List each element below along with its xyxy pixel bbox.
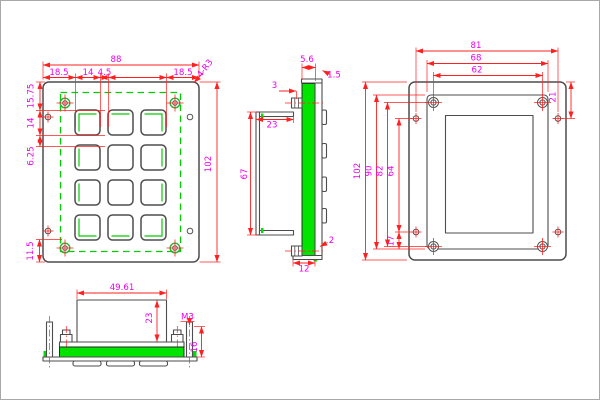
dim-cover-height: 67 xyxy=(240,169,250,180)
bottom-view: 49.61 23 M3 16 xyxy=(43,283,205,369)
dim-key-gap: 4.5 xyxy=(98,68,112,78)
key-bump xyxy=(322,110,327,125)
dim-margin-right: 18.5 xyxy=(173,68,192,78)
cover-opening xyxy=(446,116,534,234)
dim-screw-offset: 3 xyxy=(272,81,277,91)
dim-key-width: 14 xyxy=(83,68,94,78)
dim-corner-radius: 4-R3 xyxy=(195,58,215,80)
gasket-mark xyxy=(261,228,264,233)
gasket-mark xyxy=(261,114,264,119)
dim-hole-offset: 17 xyxy=(387,236,397,247)
dim-stud-length: 16 xyxy=(190,342,200,353)
dim-stack-thickness: 5.6 xyxy=(300,55,314,65)
dim-cover-width: 49.61 xyxy=(110,283,135,293)
key-bump xyxy=(322,209,327,224)
dim-cover-width: 68 xyxy=(471,54,482,64)
dim-cover-height: 90 xyxy=(365,166,375,177)
key-profile xyxy=(107,361,135,366)
side-view: 5.6 1.5 3 23 67 2 12 xyxy=(240,55,341,275)
key-bump xyxy=(322,177,327,192)
dim-top-offset: 15.75 xyxy=(27,84,37,109)
key-profile xyxy=(73,361,101,366)
dim-stud-thread: M3 xyxy=(181,313,194,323)
dim-key-height: 14 xyxy=(27,118,37,129)
dim-cover-depth: 23 xyxy=(145,313,155,324)
rear-cover-back-wall xyxy=(256,112,260,235)
rear-cover-top-flange xyxy=(260,112,294,117)
dim-screw-span-height: 82 xyxy=(376,166,386,177)
dim-overall-width: 88 xyxy=(111,55,122,65)
side-view-dimensions: 5.6 1.5 3 23 67 2 12 xyxy=(240,55,341,275)
cad-drawing: 88 18.5 14 4.5 18.5 4-R3 102 15.75 14 6.… xyxy=(0,0,600,400)
dim-bottom-offset: 11.5 xyxy=(26,241,36,260)
pcb-profile xyxy=(60,347,185,357)
key-profile xyxy=(140,361,168,366)
front-panel-profile xyxy=(43,357,197,361)
side-hole xyxy=(187,228,193,234)
dim-cover-depth: 23 xyxy=(267,121,278,131)
key-bump xyxy=(322,144,327,159)
dim-corner-offset: 21 xyxy=(549,92,559,103)
dim-hole-span-width: 81 xyxy=(471,41,482,51)
side-hole xyxy=(187,114,193,120)
dim-panel-thickness: 1.5 xyxy=(327,71,341,81)
panel-plate-edge xyxy=(315,83,322,256)
key xyxy=(108,145,133,170)
front-view: 88 18.5 14 4.5 18.5 4-R3 102 15.75 14 6.… xyxy=(26,55,221,262)
dim-bottom-flange: 12 xyxy=(299,265,310,275)
dim-row-gap: 6.25 xyxy=(27,146,37,165)
pcb-edge xyxy=(302,84,315,260)
dim-screw-span-width: 62 xyxy=(472,66,483,76)
dim-hole-span-height: 64 xyxy=(387,166,397,177)
dim-plate-edge: 2 xyxy=(329,236,334,246)
back-view: 81 68 62 21 102 90 82 64 17 xyxy=(353,41,575,260)
drawing-canvas: 88 18.5 14 4.5 18.5 4-R3 102 15.75 14 6.… xyxy=(0,0,600,400)
panel-top-fold xyxy=(302,79,323,83)
key xyxy=(108,180,133,205)
dim-overall-height: 102 xyxy=(204,156,214,172)
dim-overall-height: 102 xyxy=(353,163,363,179)
dim-margin-left: 18.5 xyxy=(49,68,68,78)
rear-cover-bottom-flange xyxy=(260,231,294,236)
frame-strip xyxy=(60,342,185,347)
